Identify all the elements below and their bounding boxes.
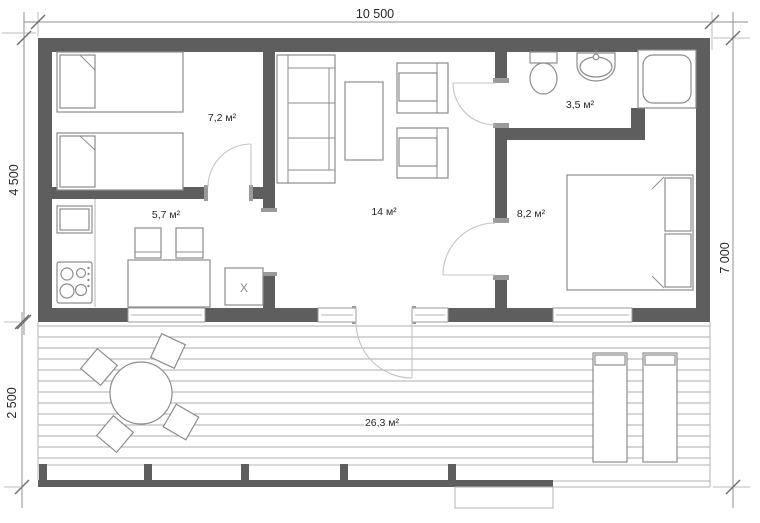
single-bed (57, 133, 183, 190)
armchair (397, 128, 448, 178)
dim-label-left-lower: 2 500 (5, 387, 19, 418)
double-bed (567, 175, 693, 290)
area-label-living-room: 14 м² (371, 206, 397, 218)
area-label-terrace: 26,3 м² (365, 417, 400, 429)
wall-bottom-3 (448, 308, 553, 322)
terrace-dining-set (81, 334, 199, 453)
terrace-chair (81, 349, 118, 386)
appliance-box-label: X (240, 281, 248, 295)
deck-railing-base (38, 480, 553, 487)
terrace-deck (38, 322, 710, 508)
coffee-table (345, 82, 383, 160)
appliance-box: X (225, 268, 263, 305)
furniture-bedroom-small (57, 52, 183, 190)
wall-bottom-4 (632, 308, 710, 322)
terrace-chair (151, 334, 186, 369)
area-label-kitchen: 5,7 м² (152, 209, 181, 221)
furniture-living-room (277, 55, 448, 183)
wall-bottom-1 (38, 308, 128, 322)
kitchen-chair (135, 228, 161, 258)
stove (57, 262, 92, 303)
floor-plan-svg: X (0, 0, 760, 523)
wall-door-jamb-piece (251, 187, 275, 199)
wall-bathroom-bottom (495, 128, 645, 140)
sink (577, 50, 615, 81)
floor-plan-canvas: X (0, 0, 760, 523)
wall-end-cap (261, 208, 277, 212)
windows (128, 308, 632, 322)
door-bedroom-small (208, 144, 251, 187)
sofa (277, 55, 335, 183)
armchair (397, 63, 448, 113)
kitchen-table (128, 260, 210, 307)
furniture-bathroom (530, 50, 696, 108)
wall-kitchen-stub (263, 276, 275, 308)
sun-lounger (643, 353, 677, 462)
area-label-bathroom: 3,5 м² (566, 99, 595, 111)
deck-railing-posts (39, 464, 456, 481)
sun-lounger (593, 353, 627, 462)
terrace-chair (163, 404, 199, 440)
shower (638, 50, 696, 108)
fridge (57, 206, 92, 233)
single-bed (57, 52, 183, 112)
entry-step (455, 487, 553, 508)
dim-label-top: 10 500 (356, 7, 394, 21)
wall-shower-side (631, 108, 645, 140)
furniture-bedroom-master (567, 175, 693, 290)
toilet (530, 52, 557, 94)
door-bathroom (453, 83, 495, 125)
dim-label-left-upper: 4 500 (7, 164, 21, 195)
terrace-round-table (110, 362, 172, 424)
wall-bedroom-living (263, 52, 275, 208)
door-bedroom-master (443, 223, 495, 275)
area-label-bedroom-small: 7,2 м² (208, 112, 237, 124)
wall-bottom-2 (205, 308, 318, 322)
wall-right (696, 52, 710, 308)
dim-label-right: 7 000 (718, 242, 732, 273)
sun-loungers (593, 353, 677, 462)
area-label-bedroom-master: 8,2 м² (517, 208, 546, 220)
wall-top (38, 38, 710, 52)
kitchen-chair (176, 228, 203, 258)
wall-left (38, 52, 52, 308)
